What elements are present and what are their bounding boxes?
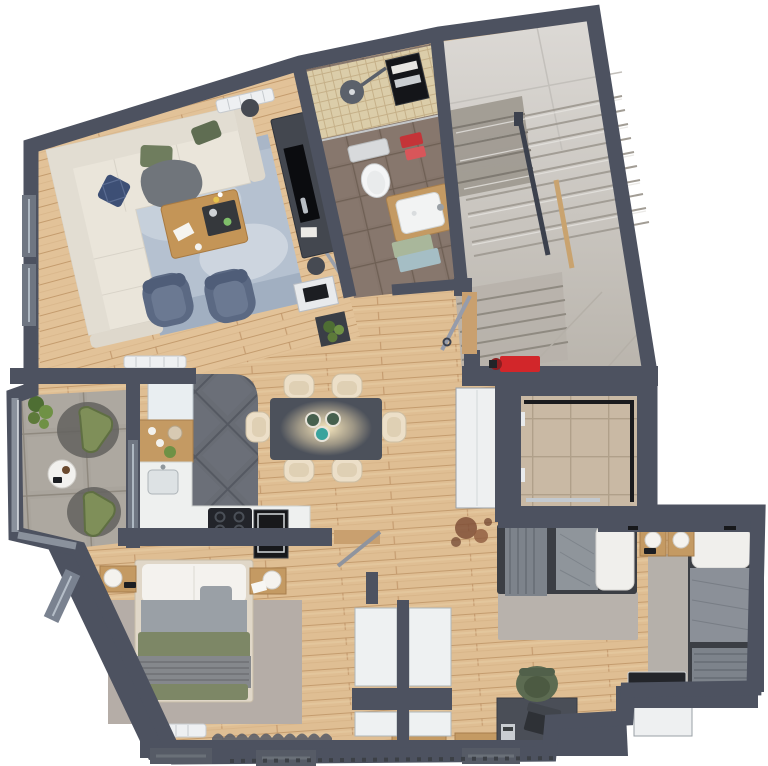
plate — [315, 427, 329, 441]
plate — [326, 412, 340, 426]
nightstand — [640, 528, 666, 556]
table-lamp — [673, 532, 689, 548]
white-closet-door — [634, 706, 692, 736]
wall-bedroom-top — [118, 528, 332, 546]
balcony-table — [48, 460, 76, 488]
plate — [306, 413, 320, 427]
wardrobe-door — [355, 608, 397, 686]
elevator-rail — [521, 412, 525, 426]
dining-chair — [284, 458, 314, 482]
door-threshold-mark — [724, 526, 736, 530]
wall-stair-bottom — [462, 366, 658, 386]
phone — [124, 582, 136, 588]
wardrobe-wall — [397, 600, 409, 736]
wardrobe-door — [355, 712, 397, 736]
single-bed-left — [497, 522, 637, 596]
wardrobe-door — [409, 608, 451, 686]
area-rug — [498, 592, 638, 640]
dining-chair — [332, 458, 362, 482]
wardrobe-wall — [352, 688, 452, 710]
elevator-cab-floor — [521, 396, 637, 506]
door-threshold-mark — [628, 526, 638, 530]
books — [501, 724, 515, 742]
quilt — [556, 528, 598, 590]
kitchen-radiator — [124, 356, 186, 368]
nightstand — [250, 568, 286, 594]
plant-stand — [315, 311, 351, 347]
pillow — [692, 528, 750, 568]
draped-blanket — [505, 522, 547, 596]
balcony — [16, 390, 130, 548]
elevator-sill — [526, 498, 600, 502]
office-chair — [516, 666, 558, 702]
dining-chair — [246, 412, 270, 442]
pouf — [241, 99, 259, 117]
table-lamp — [645, 532, 661, 548]
dining-chair — [284, 374, 314, 398]
pillow — [596, 526, 634, 590]
nightstand — [668, 528, 694, 556]
single-bed-right — [688, 524, 754, 692]
floor-plan-render — [0, 0, 768, 766]
pouf — [307, 257, 325, 275]
double-bed — [135, 560, 253, 702]
wall-entry-block — [464, 350, 480, 380]
dining-chair — [382, 412, 406, 442]
chair-backrest — [519, 668, 555, 676]
foot-throw — [692, 648, 752, 682]
newel-post — [514, 112, 523, 126]
wall-bathroom-bottom — [392, 284, 464, 290]
floor-plan-svg — [0, 0, 768, 766]
dining-chair — [332, 374, 362, 398]
wardrobe-door — [409, 712, 451, 736]
magazine — [301, 227, 317, 237]
elevator-rail — [521, 468, 525, 482]
wall-hall-elevator — [495, 382, 519, 522]
kitchen-tile-floor — [192, 374, 258, 506]
phone — [644, 548, 656, 554]
wood-worktop — [138, 420, 193, 462]
textured-runner — [137, 656, 251, 688]
fire-extinguisher — [489, 356, 540, 372]
elevator — [505, 380, 653, 522]
table-lamp — [104, 569, 122, 587]
wall-stub — [366, 572, 378, 604]
